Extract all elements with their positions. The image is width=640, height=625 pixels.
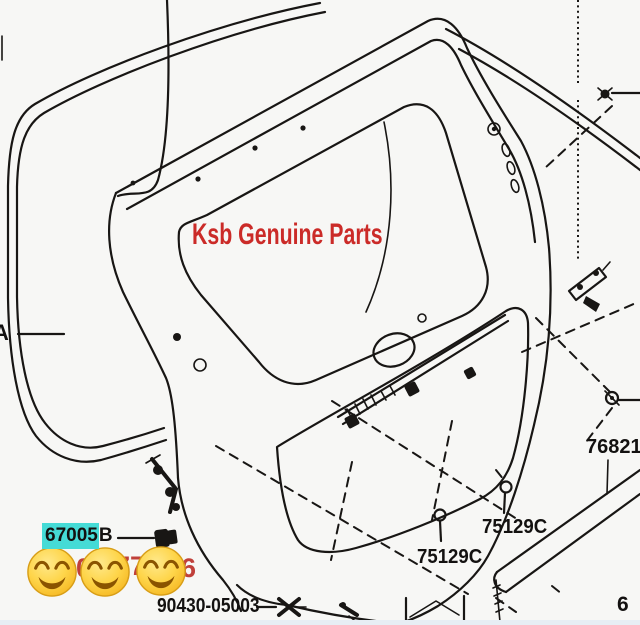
bolt-top-right-icon (598, 88, 640, 100)
callout-75129c-upper-label: 75129C (482, 517, 547, 537)
smiley-emoji-icon (26, 546, 78, 598)
smiley-emoji-icon (79, 546, 131, 598)
callout-90430-05003-label: 90430-05003 (157, 596, 260, 616)
callout-67005b-label: 67005B (42, 526, 113, 545)
part-number-suffix: B (99, 525, 113, 546)
callout-76821-label: 76821 (586, 437, 640, 457)
callout-a-label: A (0, 322, 9, 344)
back-door-panel-outline (109, 0, 640, 624)
callout-75129c-lower-label: 75129C (417, 547, 482, 567)
parts-diagram: Ksb Genuine Parts A 67005B 75129C 75129C… (0, 0, 640, 625)
emblem-hole (369, 328, 419, 372)
bolt-right-icon (605, 391, 640, 405)
bottom-edge-band (0, 620, 640, 625)
callout-cutoff-label: 6 (617, 594, 629, 615)
hinge-left-icon (146, 455, 180, 512)
screw-75129c-lower-icon (435, 510, 446, 542)
watermark-text: Ksb Genuine Parts (192, 220, 383, 250)
hinge-right-icon (569, 262, 610, 312)
highlighted-part-number: 67005 (42, 523, 99, 549)
smiley-emoji-icon (135, 545, 187, 597)
